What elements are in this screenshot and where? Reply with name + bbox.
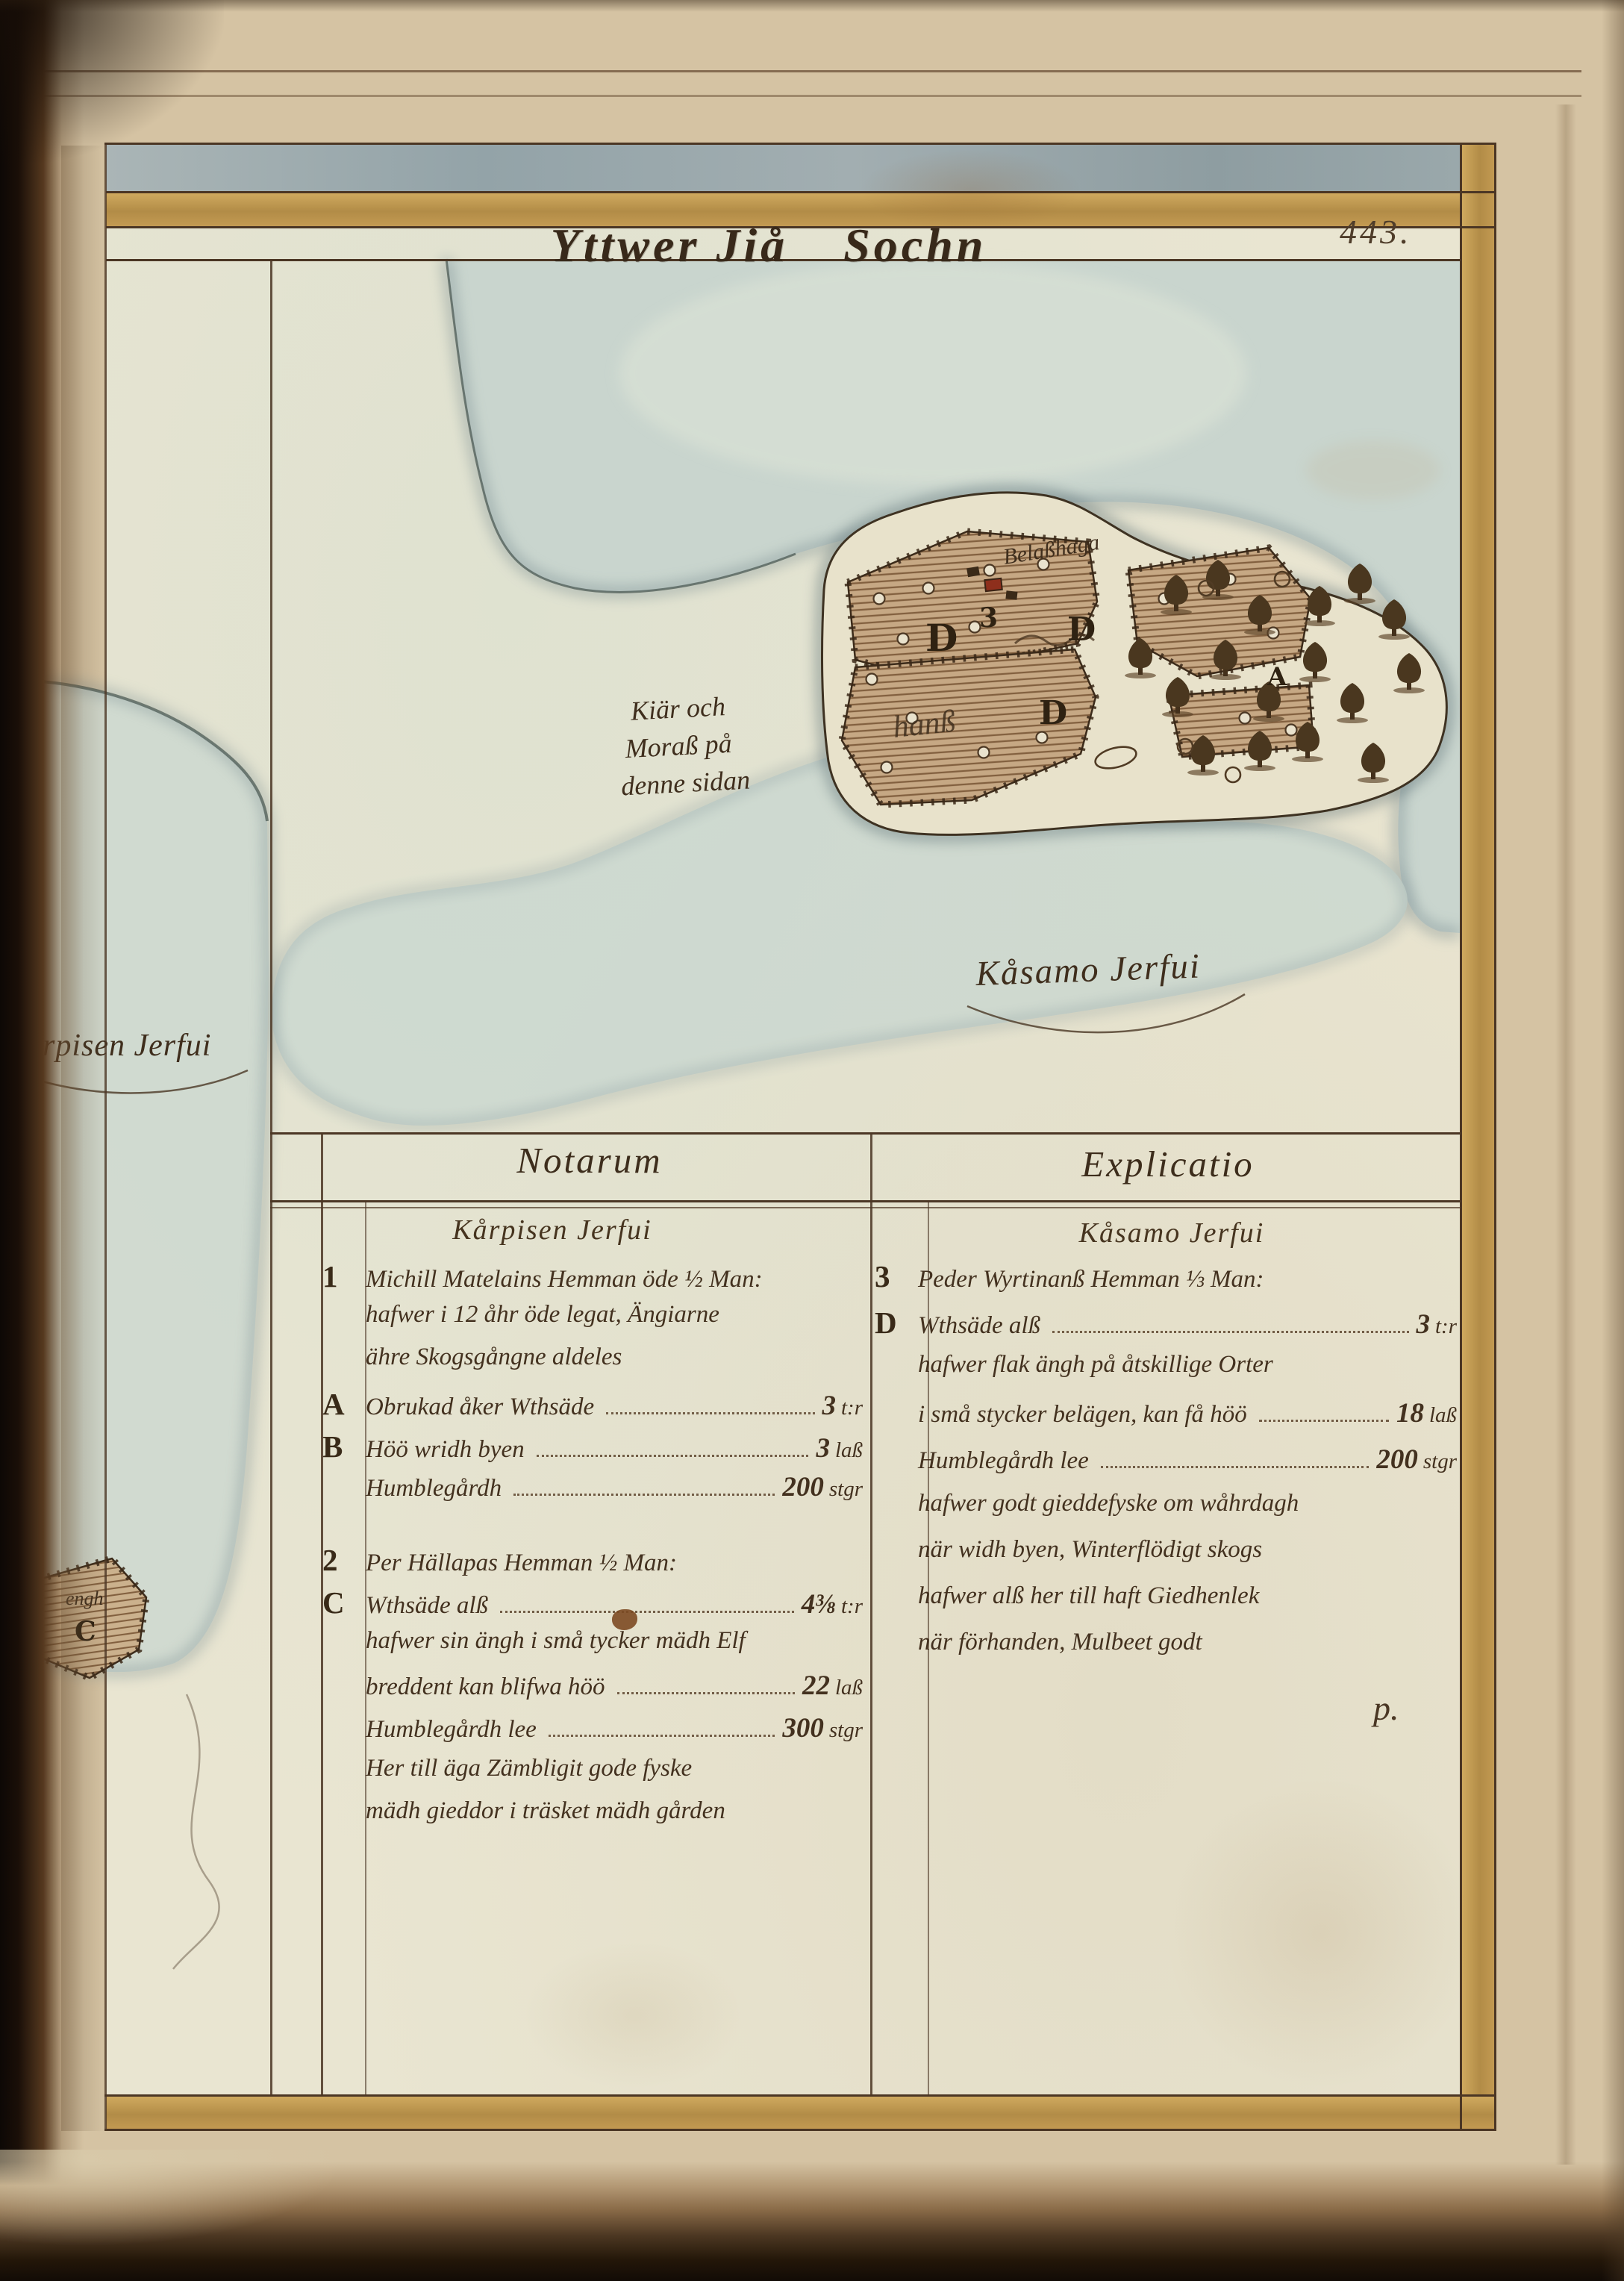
row-text: i små stycker belägen, kan få höö xyxy=(918,1401,1247,1429)
row-text: Obrukad åker Wthsäde xyxy=(366,1394,594,1421)
parcel-number: 3 xyxy=(979,602,998,634)
marsh-note: Kiär och Moraß på denne sidan xyxy=(616,690,751,802)
top-rule-2 xyxy=(41,95,1581,97)
row-value: 300 xyxy=(782,1712,824,1744)
table-row: Humblegårdh lee300stgr xyxy=(322,1712,863,1755)
book-gutter-shadow xyxy=(0,0,84,2281)
table-row: Her till äga Zämbligit gode fyske xyxy=(322,1755,863,1797)
explicatio-header: Explicatio xyxy=(993,1143,1343,1185)
frame-gold-band-bottom xyxy=(106,2097,1496,2129)
paper-stain xyxy=(522,1941,746,2090)
marsh-note-line1: Kiär och xyxy=(629,691,726,726)
row-value: 3 xyxy=(822,1390,837,1422)
row-text: hafwer alß her till haft Giedhenlek xyxy=(918,1582,1259,1610)
table-row: i små stycker belägen, kan få höö18laß xyxy=(875,1397,1457,1444)
dotted-leader xyxy=(537,1455,809,1457)
row-text: Per Hällapas Hemman ½ Man: xyxy=(366,1550,677,1577)
row-margin-label: A xyxy=(322,1386,366,1422)
row-value: 200 xyxy=(782,1471,824,1503)
row-margin-label: 3 xyxy=(875,1258,918,1294)
frame-line-right-inner xyxy=(1460,143,1462,2131)
row-value: 18 xyxy=(1396,1397,1424,1429)
row-text: hafwer flak ängh på åtskillige Orter xyxy=(918,1351,1273,1379)
table-row: Humblegårdh200stgr xyxy=(322,1471,863,1514)
frame-line-left xyxy=(104,143,107,2131)
field-letter-d1: D xyxy=(925,616,958,660)
frame-gold-band-right xyxy=(1462,145,1495,2130)
table-header-underline-2 xyxy=(270,1207,1461,1208)
table-row: hafwer alß her till haft Giedhenlek xyxy=(875,1582,1457,1629)
table-row: hafwer godt gieddefyske om wåhrdagh xyxy=(875,1490,1457,1536)
row-unit: laß xyxy=(835,1438,863,1463)
row-text: Wthsäde alß xyxy=(366,1592,488,1620)
field-letter-d3: D xyxy=(1039,694,1067,732)
dotted-leader xyxy=(1259,1420,1389,1422)
table-row: 1Michill Matelains Hemman öde ½ Man: xyxy=(322,1258,863,1301)
row-unit: laß xyxy=(1429,1403,1457,1428)
table-row: DWthsäde alß3t:r xyxy=(875,1305,1457,1351)
frame-blue-wash-band xyxy=(106,145,1460,191)
row-text: mädh gieddor i träsket mädh gården xyxy=(366,1797,725,1825)
row-value: 4⅜ xyxy=(802,1588,836,1620)
frame-line-top-mid xyxy=(106,191,1496,193)
row-text: Wthsäde alß xyxy=(918,1312,1040,1340)
frame-line-top-outer xyxy=(104,143,1496,145)
table-row: BHöö wridh byen3laß xyxy=(322,1429,863,1471)
row-value: 200 xyxy=(1376,1444,1418,1476)
dotted-leader xyxy=(606,1412,814,1414)
dotted-leader xyxy=(500,1611,794,1613)
map-left-line xyxy=(270,259,272,2095)
corner-shadow xyxy=(0,0,224,164)
row-unit: stgr xyxy=(1423,1450,1457,1474)
table-row: Humblegårdh lee200stgr xyxy=(875,1444,1457,1490)
row-text: Höö wridh byen xyxy=(366,1436,525,1464)
row-text: Humblegårdh lee xyxy=(366,1716,537,1744)
dotted-leader xyxy=(549,1735,775,1737)
table-row: hafwer i 12 åhr öde legat, Ängiarne xyxy=(322,1301,863,1344)
lake-south-label: Kåsamo Jerfui xyxy=(975,947,1202,994)
row-margin-label: 2 xyxy=(322,1542,366,1578)
page-title-left: Yttwer Jiå xyxy=(551,218,788,273)
top-rule-1 xyxy=(41,70,1581,72)
table-center-line xyxy=(870,1132,872,2095)
row-unit: t:r xyxy=(841,1594,863,1619)
frame-line-bottom-outer xyxy=(104,2129,1496,2131)
row-text: Peder Wyrtinanß Hemman ⅓ Man: xyxy=(918,1266,1264,1294)
table-row: ähre Skogsgångne aldeles xyxy=(322,1344,863,1386)
row-unit: stgr xyxy=(829,1477,863,1502)
table-row: 2Per Hällapas Hemman ½ Man: xyxy=(322,1542,863,1585)
scanned-map-page: D D D 3 A Belaßhaga hanß Kiär och Moraß … xyxy=(0,0,1624,2281)
field-letter-d2: D xyxy=(1067,611,1096,649)
row-value: 3 xyxy=(816,1432,830,1464)
table-row: AObrukad åker Wthsäde3t:r xyxy=(322,1386,863,1429)
dotted-leader xyxy=(1052,1331,1408,1333)
row-text: när widh byen, Winterflödigt skogs xyxy=(918,1536,1262,1564)
row-text: Michill Matelains Hemman öde ½ Man: xyxy=(366,1266,763,1294)
table-row: 3Peder Wyrtinanß Hemman ⅓ Man: xyxy=(875,1258,1457,1305)
hair-artifact xyxy=(173,1694,219,1969)
scribe-flourish: p. xyxy=(1373,1688,1399,1728)
page-right-edge xyxy=(1602,0,1624,2281)
dotted-leader xyxy=(513,1494,775,1496)
table-top-line xyxy=(270,1132,1461,1135)
row-text: Her till äga Zämbligit gode fyske xyxy=(366,1755,692,1782)
row-margin-label: C xyxy=(322,1585,366,1620)
table-header-underline-1 xyxy=(270,1200,1461,1202)
paper-stain xyxy=(1164,1776,1478,2090)
row-margin-label: B xyxy=(322,1429,366,1464)
table-row: mädh gieddor i träsket mädh gården xyxy=(322,1797,863,1840)
dotted-leader xyxy=(617,1692,795,1694)
row-text: hafwer sin ängh i små tycker mädh Elf xyxy=(366,1627,746,1655)
frame-line-right-outer xyxy=(1494,143,1496,2131)
notarum-column: 1Michill Matelains Hemman öde ½ Man:hafw… xyxy=(322,1258,863,1840)
notarum-header: Notarum xyxy=(418,1139,761,1182)
row-unit: t:r xyxy=(841,1396,863,1420)
page-title-right: Sochn xyxy=(843,218,987,273)
dotted-leader xyxy=(1101,1466,1370,1468)
row-unit: t:r xyxy=(1435,1314,1457,1339)
row-text: breddent kan blifwa höö xyxy=(366,1673,605,1701)
row-value: 22 xyxy=(802,1670,830,1702)
west-field-label: hanß xyxy=(891,704,957,745)
page-title: Yttwer Jiå Sochn xyxy=(403,218,1134,293)
table-row: när förhanden, Mulbeet godt xyxy=(875,1629,1457,1675)
house-icon xyxy=(1005,590,1017,600)
tree-area-letter: A xyxy=(1267,662,1287,692)
row-unit: laß xyxy=(835,1676,863,1700)
row-unit: stgr xyxy=(829,1718,863,1743)
row-text: Humblegårdh lee xyxy=(918,1447,1089,1475)
table-row: när widh byen, Winterflödigt skogs xyxy=(875,1536,1457,1582)
red-house-icon xyxy=(984,578,1002,591)
right-subheader: Kåsamo Jerfui xyxy=(1034,1217,1310,1249)
row-margin-label: 1 xyxy=(322,1258,366,1294)
row-margin-label: D xyxy=(875,1305,918,1341)
table-row: CWthsäde alß4⅜t:r xyxy=(322,1585,863,1627)
row-text: när förhanden, Mulbeet godt xyxy=(918,1629,1202,1656)
row-text: ähre Skogsgångne aldeles xyxy=(366,1344,622,1371)
page-bottom-corner xyxy=(0,2150,343,2247)
row-text: hafwer i 12 åhr öde legat, Ängiarne xyxy=(366,1301,719,1329)
row-text: Humblegårdh xyxy=(366,1475,502,1503)
table-row: hafwer flak ängh på åtskillige Orter xyxy=(875,1351,1457,1397)
paper-crease xyxy=(1555,104,1576,2165)
explicatio-column: 3Peder Wyrtinanß Hemman ⅓ Man:DWthsäde a… xyxy=(875,1258,1457,1675)
page-top-edge xyxy=(0,0,1624,12)
left-subheader: Kårpisen Jerfui xyxy=(414,1214,690,1246)
marsh-note-line2: Moraß på xyxy=(624,728,733,764)
row-value: 3 xyxy=(1417,1308,1431,1341)
folio-number: 443. xyxy=(1340,212,1412,252)
frame-line-bottom-inner xyxy=(104,2094,1496,2097)
table-row: hafwer sin ängh i små tycker mädh Elf xyxy=(322,1627,863,1670)
table-row: breddent kan blifwa höö22laß xyxy=(322,1670,863,1712)
row-text: hafwer godt gieddefyske om wåhrdagh xyxy=(918,1490,1299,1517)
